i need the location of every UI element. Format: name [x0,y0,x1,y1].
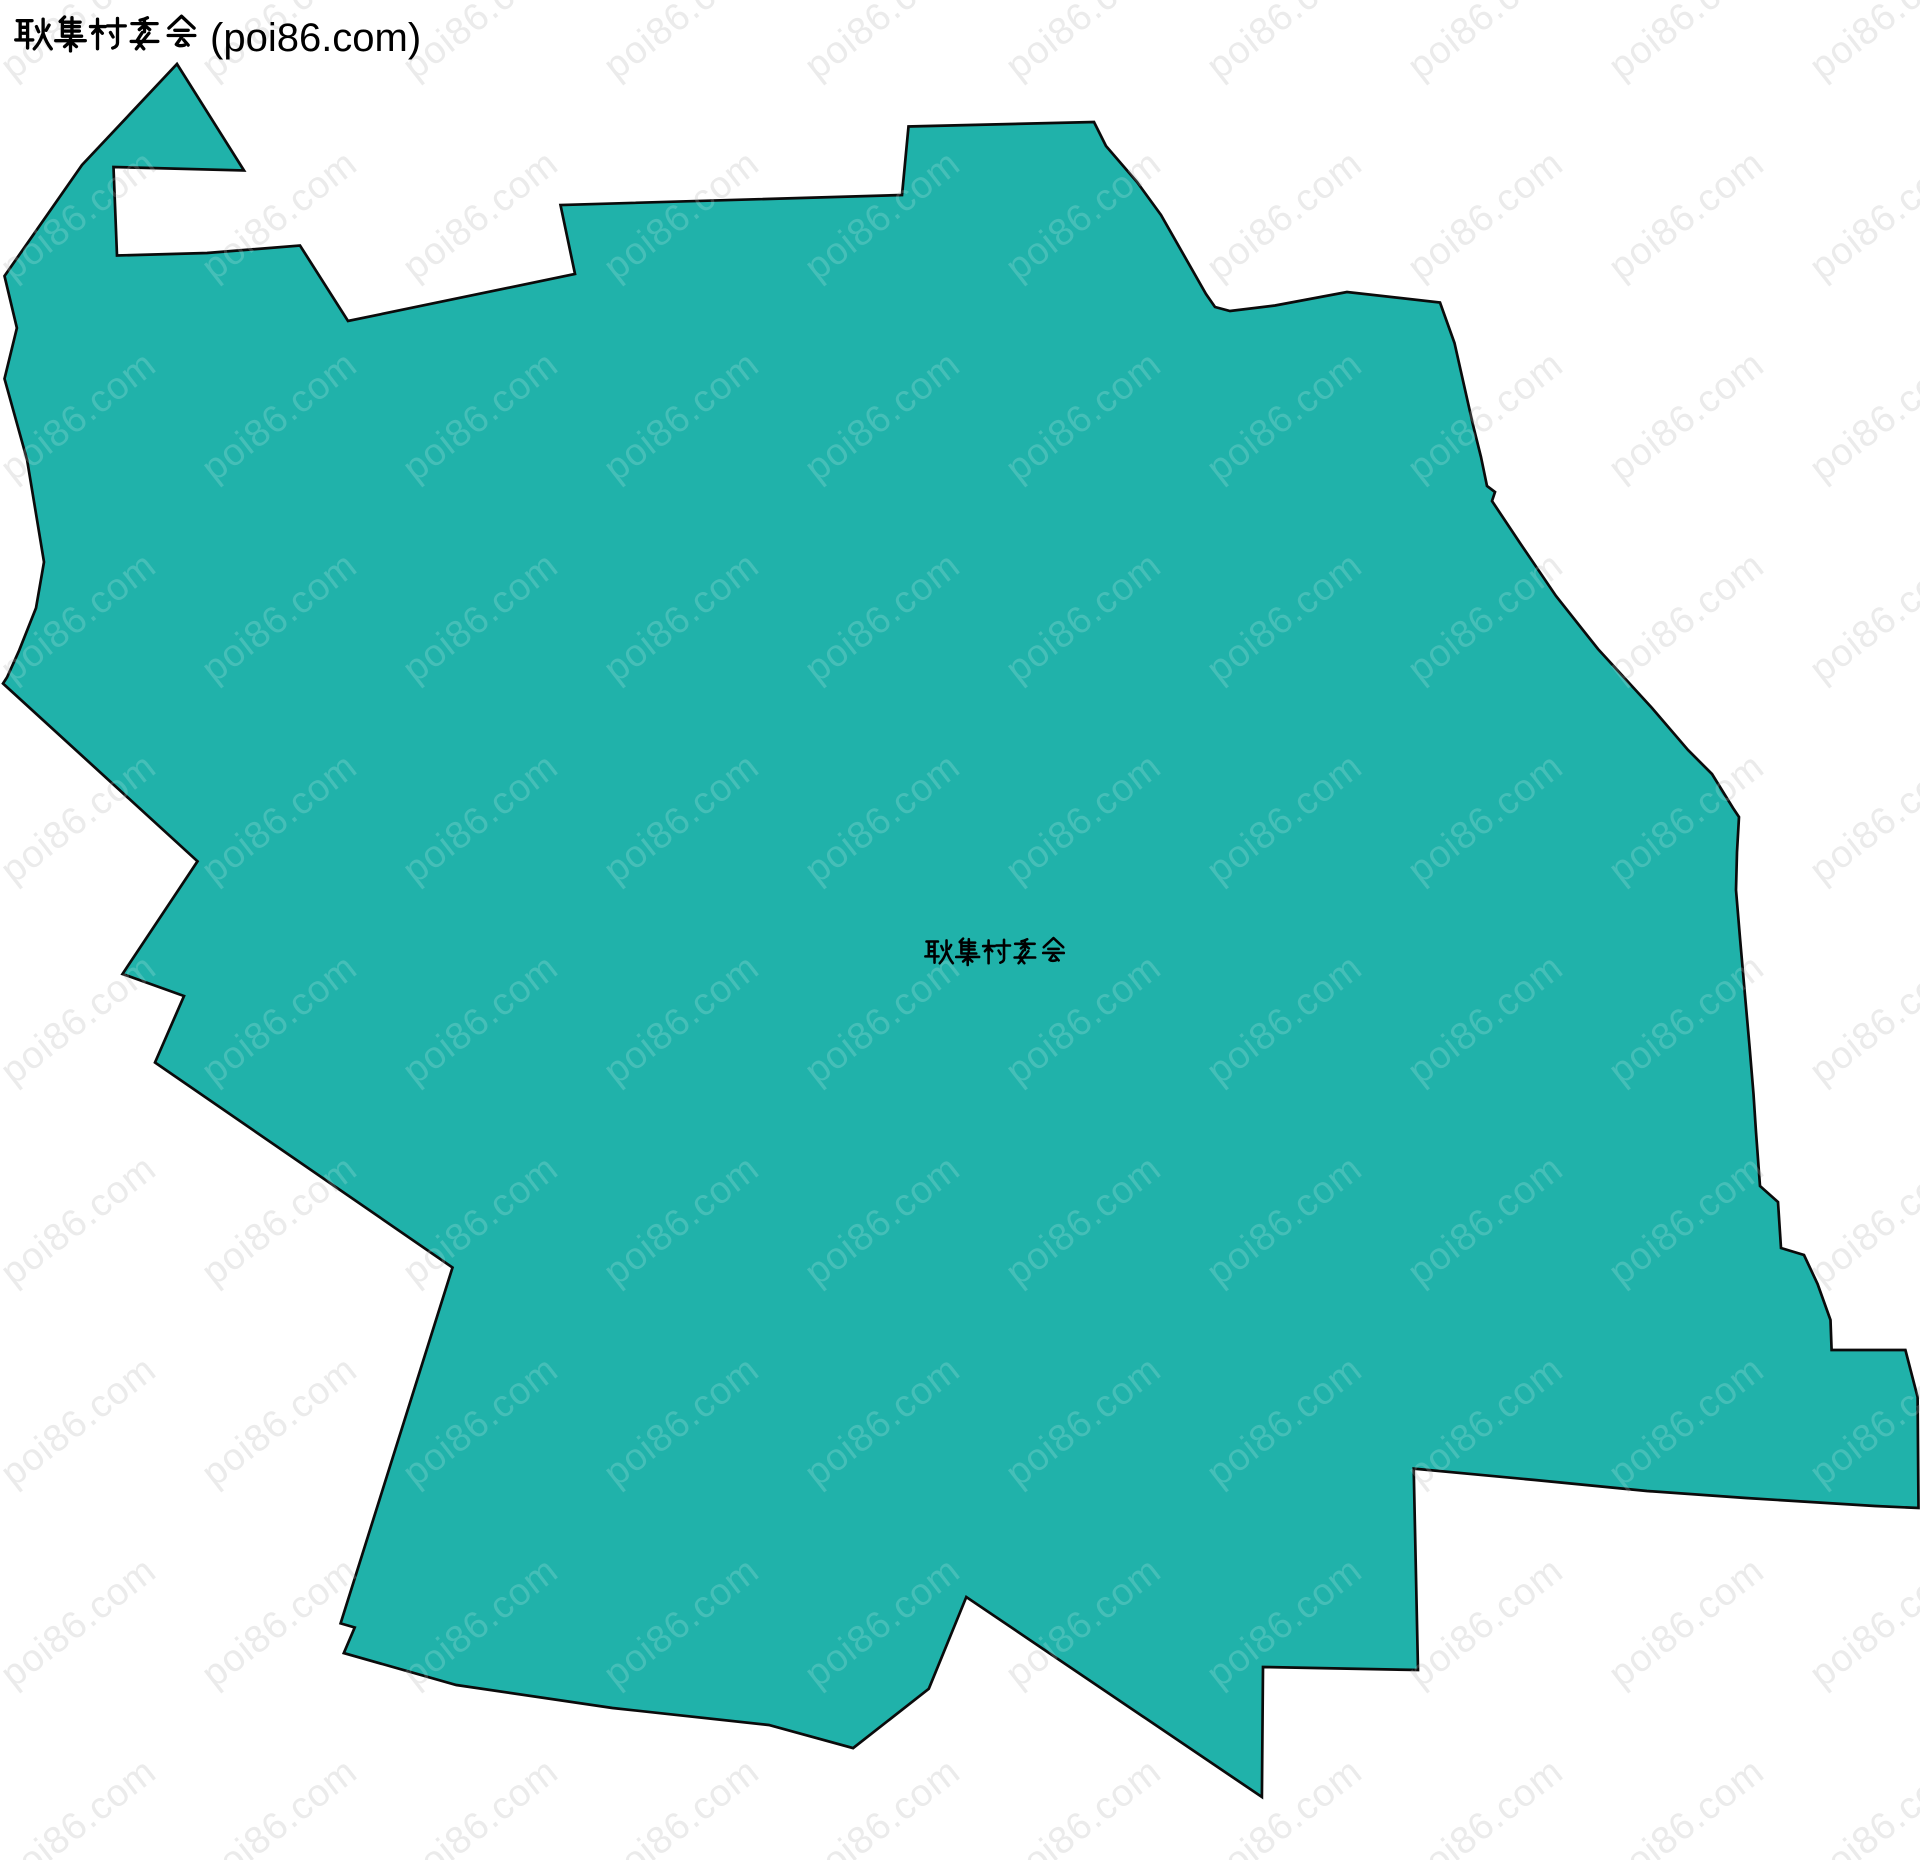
svg-text:(poi86.com): (poi86.com) [210,16,421,60]
